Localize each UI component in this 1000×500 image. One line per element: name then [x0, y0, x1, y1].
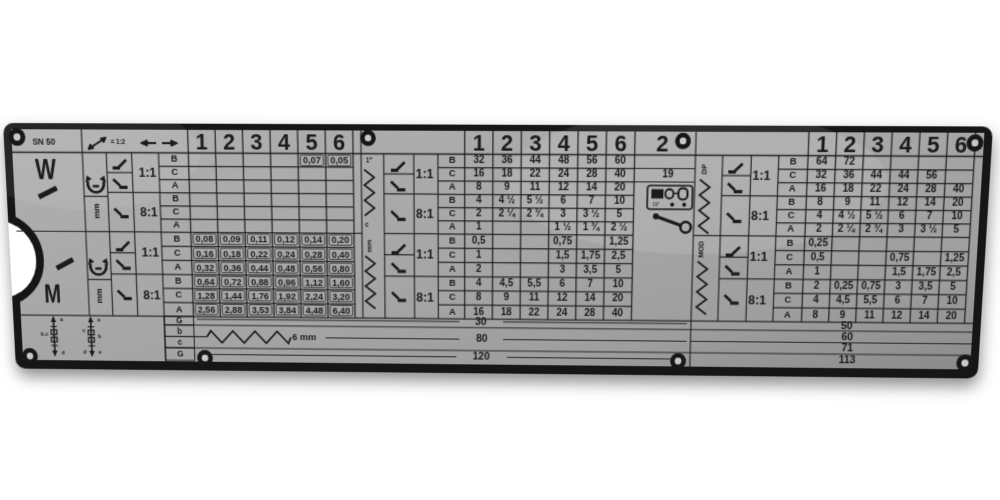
svg-text:36: 36 — [843, 170, 855, 181]
svg-text:11: 11 — [530, 182, 541, 193]
svg-text:30: 30 — [475, 316, 487, 328]
svg-text:0,75: 0,75 — [553, 236, 573, 247]
svg-text:28: 28 — [586, 169, 598, 180]
svg-text:80: 80 — [476, 333, 488, 345]
svg-text:G: G — [177, 349, 184, 359]
svg-text:B: B — [449, 155, 456, 166]
svg-text:2: 2 — [656, 131, 669, 157]
svg-text:1,92: 1,92 — [278, 291, 296, 301]
svg-text:B: B — [172, 194, 179, 205]
svg-text:11: 11 — [529, 293, 540, 304]
svg-text:A: A — [784, 309, 791, 320]
svg-text:9: 9 — [504, 293, 510, 304]
svg-text:19°: 19° — [653, 202, 660, 207]
svg-text:C: C — [174, 248, 181, 259]
svg-text:6: 6 — [333, 130, 345, 156]
svg-text:5: 5 — [586, 131, 599, 157]
svg-text:28: 28 — [584, 308, 595, 319]
svg-text:3: 3 — [250, 130, 263, 156]
svg-text:8:1: 8:1 — [140, 205, 158, 219]
svg-text:1:1: 1:1 — [141, 246, 159, 260]
svg-text:C: C — [175, 290, 182, 301]
svg-text:A: A — [787, 224, 794, 235]
svg-text:10: 10 — [614, 196, 626, 207]
svg-text:18: 18 — [501, 307, 512, 318]
svg-text:B: B — [171, 154, 178, 165]
svg-text:14: 14 — [584, 293, 596, 304]
svg-text:1:1: 1:1 — [749, 250, 768, 264]
svg-text:2 ½: 2 ½ — [611, 223, 628, 234]
svg-text:71: 71 — [841, 342, 853, 354]
svg-text:M: M — [44, 280, 62, 309]
svg-text:C: C — [449, 209, 456, 220]
svg-text:4: 4 — [558, 131, 571, 157]
svg-text:7: 7 — [587, 279, 593, 290]
svg-text:20: 20 — [614, 183, 626, 194]
svg-text:0,16: 0,16 — [196, 248, 214, 258]
svg-text:0,14: 0,14 — [304, 235, 323, 245]
svg-text:C: C — [788, 211, 795, 222]
svg-text:1″: 1″ — [366, 158, 374, 165]
svg-text:5: 5 — [926, 132, 940, 158]
svg-text:14: 14 — [918, 310, 930, 321]
svg-text:8: 8 — [476, 292, 482, 303]
svg-text:5: 5 — [615, 265, 621, 276]
svg-text:1,44: 1,44 — [224, 291, 242, 301]
svg-text:b: b — [177, 326, 182, 336]
svg-text:2: 2 — [476, 264, 482, 275]
svg-text:3: 3 — [895, 282, 902, 293]
svg-text:3: 3 — [529, 131, 541, 157]
svg-text:1,25: 1,25 — [944, 253, 965, 264]
svg-text:A: A — [449, 306, 456, 317]
svg-text:0,09: 0,09 — [223, 234, 241, 244]
svg-text:c: c — [82, 328, 85, 334]
svg-text:3: 3 — [871, 132, 885, 158]
svg-text:3,5: 3,5 — [918, 282, 933, 293]
svg-text:24: 24 — [897, 184, 909, 195]
svg-text:7: 7 — [926, 211, 933, 222]
svg-text:2: 2 — [843, 132, 857, 158]
svg-text:1:1: 1:1 — [138, 166, 156, 180]
svg-text:4 ½: 4 ½ — [499, 196, 516, 207]
svg-text:16: 16 — [473, 169, 484, 180]
svg-text:0,24: 0,24 — [277, 249, 296, 259]
svg-text:MOD: MOD — [698, 241, 705, 258]
svg-text:36: 36 — [501, 155, 513, 166]
svg-text:W: W — [34, 152, 56, 186]
svg-text:7: 7 — [922, 296, 929, 307]
svg-text:A: A — [785, 267, 792, 278]
svg-text:9: 9 — [504, 182, 510, 193]
svg-text:0,05: 0,05 — [330, 155, 348, 165]
svg-text:6: 6 — [899, 211, 906, 222]
svg-text:19: 19 — [662, 170, 674, 181]
svg-text:A: A — [176, 304, 183, 315]
svg-text:B: B — [173, 234, 180, 245]
svg-text:4,5: 4,5 — [500, 279, 514, 290]
svg-text:5: 5 — [305, 130, 318, 156]
svg-text:22: 22 — [530, 169, 542, 180]
svg-text:1 ½: 1 ½ — [555, 222, 572, 233]
svg-text:DP: DP — [702, 164, 709, 174]
svg-text:1: 1 — [814, 267, 820, 278]
svg-text:60: 60 — [841, 331, 853, 343]
svg-text:20: 20 — [945, 311, 957, 322]
svg-text:C: C — [171, 167, 178, 178]
svg-text:6: 6 — [560, 196, 566, 207]
svg-text:10: 10 — [946, 296, 958, 307]
svg-text:2 ¼: 2 ¼ — [498, 209, 516, 220]
svg-text:c: c — [177, 337, 182, 347]
svg-text:B: B — [449, 278, 456, 289]
svg-text:2: 2 — [501, 131, 513, 157]
svg-text:B: B — [449, 235, 456, 246]
svg-text:0,40: 0,40 — [332, 249, 350, 259]
svg-text:2 ¾: 2 ¾ — [865, 224, 884, 235]
svg-text:A: A — [172, 181, 179, 192]
svg-text:b,c: b,c — [41, 332, 49, 338]
svg-text:4,5: 4,5 — [836, 295, 851, 306]
svg-text:20: 20 — [952, 198, 964, 209]
svg-text:1: 1 — [473, 130, 485, 156]
svg-text:0,64: 0,64 — [197, 277, 216, 287]
svg-text:9: 9 — [844, 197, 851, 208]
svg-text:2,5: 2,5 — [946, 268, 961, 279]
svg-text:40: 40 — [953, 185, 965, 196]
svg-text:4,48: 4,48 — [306, 306, 324, 316]
svg-text:48: 48 — [558, 156, 570, 167]
svg-text:11: 11 — [869, 198, 881, 209]
svg-text:60: 60 — [615, 156, 627, 167]
svg-text:3,5: 3,5 — [583, 265, 597, 276]
svg-text:1,76: 1,76 — [251, 291, 269, 301]
svg-text:1,5: 1,5 — [556, 250, 570, 261]
svg-text:3: 3 — [898, 225, 905, 236]
svg-text:12: 12 — [556, 293, 567, 304]
svg-text:0,25: 0,25 — [834, 281, 854, 292]
svg-text:9: 9 — [839, 310, 845, 321]
svg-text:12: 12 — [558, 183, 570, 194]
svg-text:8:1: 8:1 — [751, 209, 770, 223]
svg-text:0,48: 0,48 — [278, 263, 296, 273]
svg-text:2: 2 — [813, 281, 819, 292]
svg-text:1: 1 — [816, 132, 830, 158]
svg-text:0,25: 0,25 — [808, 238, 828, 249]
svg-text:0,5: 0,5 — [810, 252, 825, 263]
svg-text:24: 24 — [558, 169, 570, 180]
svg-text:40: 40 — [614, 169, 626, 180]
svg-text:20: 20 — [612, 294, 624, 305]
svg-text:1: 1 — [476, 222, 482, 233]
svg-text:8:1: 8:1 — [416, 207, 434, 221]
svg-text:0,07: 0,07 — [303, 155, 321, 165]
svg-text:1,75: 1,75 — [581, 251, 601, 262]
svg-text:6: 6 — [614, 131, 627, 157]
svg-text:0,36: 0,36 — [224, 263, 242, 273]
svg-text:11: 11 — [864, 310, 875, 321]
svg-text:22: 22 — [528, 307, 539, 318]
svg-text:1,60: 1,60 — [332, 278, 350, 288]
svg-text:0,11: 0,11 — [250, 235, 267, 245]
svg-text:mm: mm — [367, 240, 374, 253]
svg-text:B: B — [785, 281, 792, 292]
svg-text:56: 56 — [926, 171, 938, 182]
svg-text:1,75: 1,75 — [916, 268, 937, 279]
svg-text:C: C — [449, 292, 456, 303]
svg-text:5: 5 — [616, 210, 622, 221]
svg-text:56: 56 — [586, 156, 598, 167]
svg-text:22: 22 — [870, 184, 882, 195]
svg-text:5 ½: 5 ½ — [866, 211, 883, 222]
svg-text:1,5: 1,5 — [892, 267, 907, 278]
svg-text:0,56: 0,56 — [305, 263, 323, 273]
svg-text:1,28: 1,28 — [197, 291, 215, 301]
svg-text:4: 4 — [476, 195, 482, 206]
svg-text:44: 44 — [870, 171, 882, 182]
svg-text:5: 5 — [953, 225, 960, 236]
svg-text:0,32: 0,32 — [196, 263, 214, 273]
svg-text:1: 1 — [195, 129, 208, 155]
svg-text:B: B — [449, 195, 456, 206]
svg-text:1: 1 — [476, 250, 482, 261]
svg-text:= 1:2: = 1:2 — [111, 139, 126, 146]
svg-text:3 ½: 3 ½ — [920, 225, 937, 236]
svg-text:4: 4 — [813, 295, 819, 306]
svg-text:C: C — [173, 207, 180, 218]
svg-text:1:1: 1:1 — [416, 248, 434, 262]
svg-text:C: C — [449, 169, 456, 180]
svg-text:B: B — [787, 238, 794, 249]
svg-text:0,5: 0,5 — [472, 236, 486, 247]
svg-text:0,20: 0,20 — [332, 235, 350, 245]
svg-text:6: 6 — [894, 296, 901, 307]
svg-text:1,25: 1,25 — [609, 237, 629, 248]
svg-text:0,80: 0,80 — [332, 264, 350, 274]
svg-text:8: 8 — [812, 310, 818, 321]
svg-text:4: 4 — [278, 130, 291, 156]
svg-text:2: 2 — [476, 209, 482, 220]
svg-text:18: 18 — [501, 169, 513, 180]
svg-text:24: 24 — [556, 307, 567, 318]
svg-text:44: 44 — [530, 156, 542, 167]
svg-text:6: 6 — [954, 132, 968, 158]
svg-text:18: 18 — [842, 184, 854, 195]
svg-text:3,53: 3,53 — [252, 305, 270, 315]
svg-text:2,24: 2,24 — [305, 292, 323, 302]
svg-text:72: 72 — [843, 157, 855, 168]
svg-text:5,5: 5,5 — [863, 296, 878, 307]
svg-text:8:1: 8:1 — [143, 288, 161, 302]
svg-text:10: 10 — [951, 211, 963, 222]
svg-text:G: G — [176, 316, 183, 326]
svg-text:6 mm: 6 mm — [292, 333, 316, 344]
svg-text:4: 4 — [899, 132, 913, 158]
svg-text:mm: mm — [91, 203, 101, 219]
svg-text:2,88: 2,88 — [225, 305, 243, 315]
svg-text:120: 120 — [473, 351, 490, 363]
svg-text:113: 113 — [838, 355, 855, 367]
svg-text:A: A — [789, 184, 796, 195]
svg-text:B: B — [790, 157, 797, 168]
svg-text:8:1: 8:1 — [416, 291, 434, 305]
svg-text:1:1: 1:1 — [416, 167, 434, 181]
svg-text:3: 3 — [560, 209, 566, 220]
svg-text:0,18: 0,18 — [223, 249, 241, 259]
svg-text:0,08: 0,08 — [196, 234, 214, 244]
svg-text:e: e — [99, 350, 102, 356]
svg-text:0,75: 0,75 — [861, 281, 881, 292]
svg-text:12: 12 — [891, 310, 903, 321]
svg-text:0,75: 0,75 — [890, 253, 911, 264]
svg-text:32: 32 — [473, 155, 484, 166]
svg-text:C: C — [784, 295, 791, 306]
svg-text:1,12: 1,12 — [305, 278, 323, 288]
svg-text:0,28: 0,28 — [305, 249, 323, 259]
svg-text:3 ½: 3 ½ — [583, 209, 600, 220]
svg-text:C: C — [789, 170, 796, 181]
svg-text:2 ¾: 2 ¾ — [527, 209, 545, 220]
svg-text:0,96: 0,96 — [278, 277, 296, 287]
svg-text:B: B — [788, 197, 795, 208]
svg-text:14: 14 — [586, 183, 598, 194]
svg-text:0,72: 0,72 — [224, 277, 242, 287]
svg-text:A: A — [174, 262, 181, 273]
svg-text:64: 64 — [816, 157, 828, 168]
svg-text:3,20: 3,20 — [332, 292, 350, 302]
svg-text:C: C — [449, 250, 456, 261]
svg-text:28: 28 — [925, 184, 937, 195]
svg-text:C: C — [786, 252, 793, 263]
svg-text:14: 14 — [924, 198, 936, 209]
svg-text:2 ¼: 2 ¼ — [838, 224, 857, 235]
svg-text:2,56: 2,56 — [198, 305, 216, 315]
svg-text:A: A — [449, 182, 456, 193]
svg-text:A: A — [449, 264, 456, 275]
svg-text:6,40: 6,40 — [333, 306, 351, 316]
svg-text:44: 44 — [898, 171, 910, 182]
svg-text:40: 40 — [612, 308, 624, 319]
svg-text:4: 4 — [476, 278, 482, 289]
svg-text:2: 2 — [816, 224, 822, 235]
svg-text:0,88: 0,88 — [251, 277, 269, 287]
svg-text:16: 16 — [815, 184, 827, 195]
svg-text:A: A — [449, 222, 456, 233]
svg-text:1:1: 1:1 — [752, 168, 771, 182]
svg-text:5,5: 5,5 — [527, 279, 541, 290]
svg-text:c: c — [365, 222, 369, 229]
svg-text:0,44: 0,44 — [251, 263, 270, 273]
svg-text:8:1: 8:1 — [748, 293, 766, 307]
svg-text:A: A — [173, 220, 180, 231]
svg-text:10: 10 — [612, 279, 624, 290]
svg-text:7: 7 — [588, 196, 594, 207]
svg-text:5: 5 — [950, 282, 957, 293]
svg-text:SN 50: SN 50 — [32, 136, 56, 146]
svg-text:mm: mm — [94, 288, 104, 303]
svg-text:2: 2 — [223, 130, 236, 156]
svg-text:3,84: 3,84 — [279, 305, 297, 315]
svg-text:12: 12 — [897, 198, 909, 209]
svg-text:32: 32 — [815, 170, 827, 181]
svg-text:4 ½: 4 ½ — [838, 211, 855, 222]
svg-text:1 ¾: 1 ¾ — [583, 223, 601, 234]
svg-text:5 ½: 5 ½ — [527, 196, 544, 207]
svg-text:8: 8 — [817, 197, 823, 208]
svg-text:8: 8 — [476, 182, 482, 193]
svg-text:B: B — [175, 276, 182, 287]
svg-text:3: 3 — [560, 265, 566, 276]
svg-text:0,22: 0,22 — [250, 249, 268, 259]
svg-text:4: 4 — [816, 211, 822, 222]
svg-text:6: 6 — [559, 279, 565, 290]
svg-text:2,5: 2,5 — [612, 251, 626, 262]
svg-text:0,12: 0,12 — [277, 235, 295, 245]
